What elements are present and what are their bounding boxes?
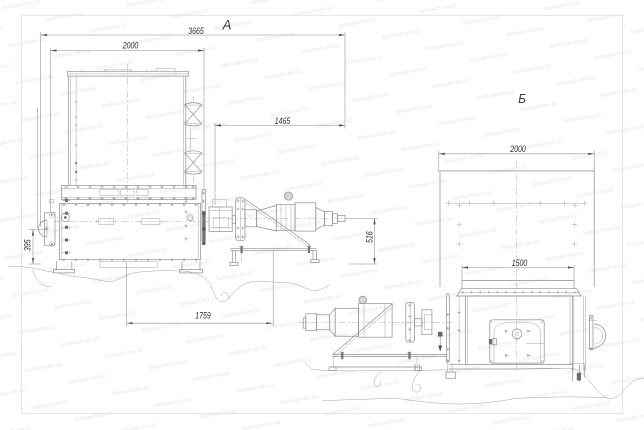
svg-text:1465: 1465: [275, 116, 291, 126]
svg-text:516: 516: [364, 231, 374, 243]
svg-text:1759: 1759: [195, 311, 211, 321]
svg-text:Б: Б: [518, 92, 526, 106]
svg-text:3665: 3665: [188, 26, 204, 36]
svg-text:2000: 2000: [509, 144, 525, 154]
svg-text:А: А: [222, 17, 232, 33]
svg-text:395: 395: [23, 239, 33, 251]
svg-text:1500: 1500: [512, 258, 528, 268]
svg-text:2000: 2000: [122, 41, 138, 51]
